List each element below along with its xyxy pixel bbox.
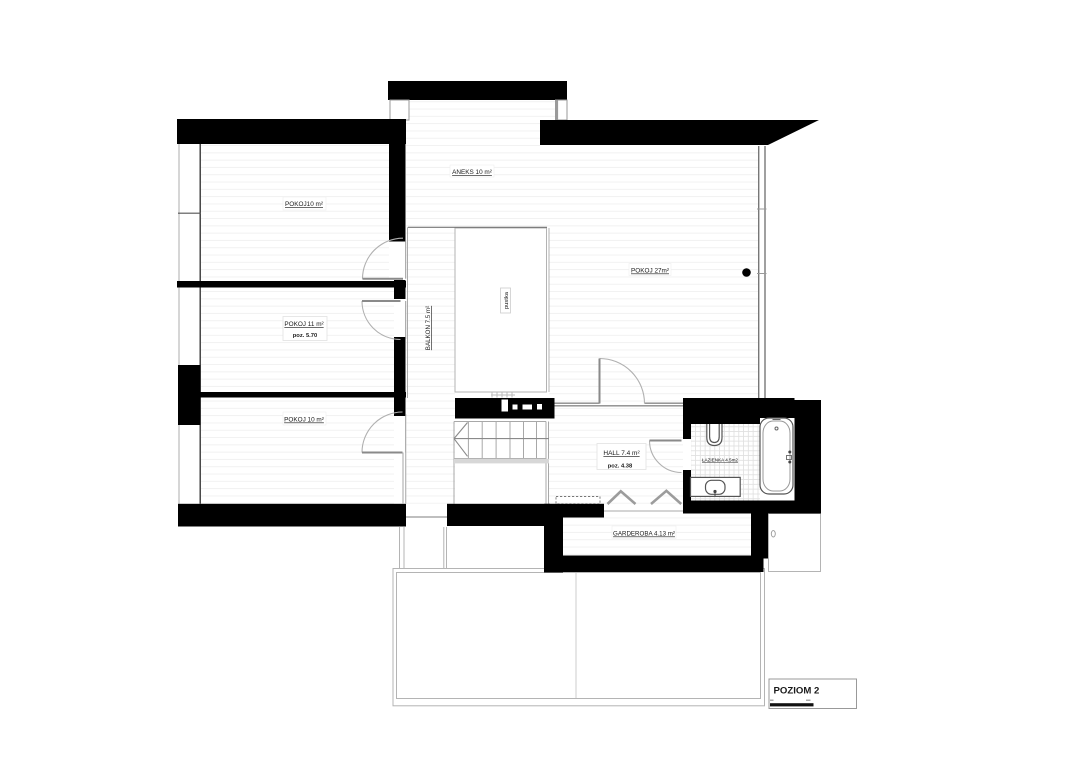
svg-text:POZIOM 2: POZIOM 2 bbox=[774, 686, 820, 697]
svg-text:POKOJ 11 m²: POKOJ 11 m² bbox=[284, 321, 323, 328]
svg-text:poz. 5.70: poz. 5.70 bbox=[293, 333, 317, 339]
svg-text:pustka: pustka bbox=[504, 291, 510, 309]
svg-text:ANEKS 10 m²: ANEKS 10 m² bbox=[452, 169, 492, 176]
svg-text:BALKON 7.5 m²: BALKON 7.5 m² bbox=[425, 306, 432, 350]
svg-text:GARDEROBA 4.13 m²: GARDEROBA 4.13 m² bbox=[613, 531, 675, 538]
svg-text:POKOJ10 m²: POKOJ10 m² bbox=[285, 201, 323, 208]
svg-text:HALL 7.4 m²: HALL 7.4 m² bbox=[603, 450, 640, 457]
svg-text:ŁAZIENKA 4.5m2: ŁAZIENKA 4.5m2 bbox=[702, 457, 738, 462]
svg-text:POKOJ 27m²: POKOJ 27m² bbox=[631, 268, 669, 275]
svg-text:POKOJ 10 m²: POKOJ 10 m² bbox=[284, 417, 324, 424]
svg-text:poz. 4.38: poz. 4.38 bbox=[608, 464, 633, 470]
